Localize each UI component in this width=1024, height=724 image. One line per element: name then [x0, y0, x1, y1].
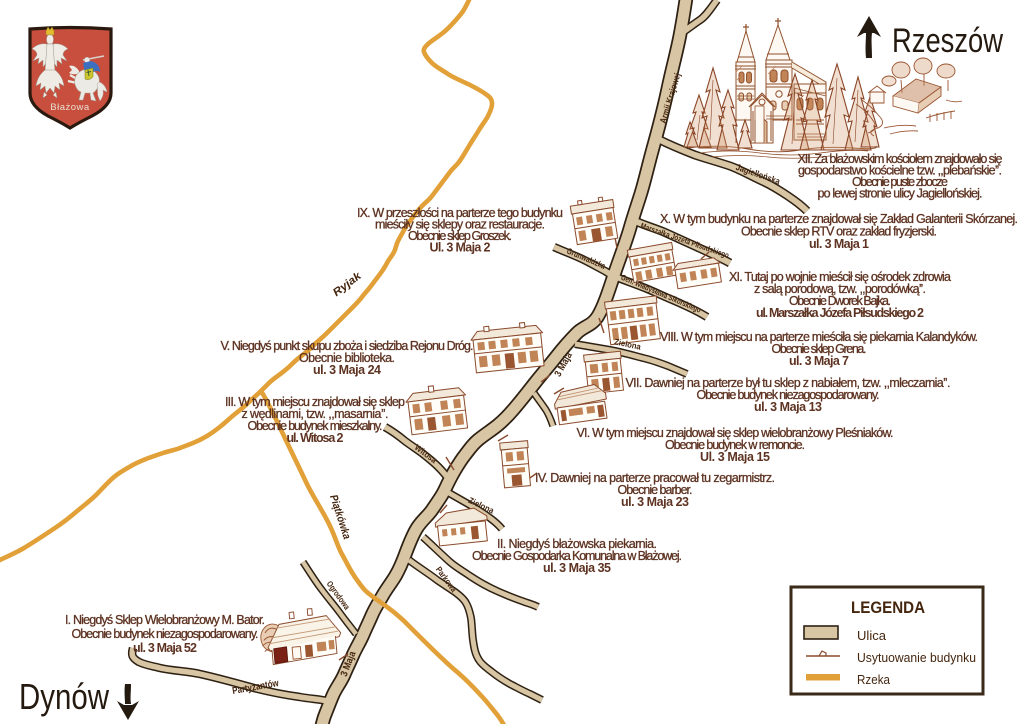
- svg-text:ul. 3 Maja 52: ul. 3 Maja 52: [133, 641, 197, 655]
- svg-text:Ul. 3 Maja 15: Ul. 3 Maja 15: [700, 450, 770, 464]
- svg-text:ul. 3 Maja 7: ul. 3 Maja 7: [789, 354, 849, 368]
- svg-text:Ryjak: Ryjak: [331, 270, 365, 299]
- svg-text:po lewej stronie ulicy Jagiell: po lewej stronie ulicy Jagiellońskiej.: [818, 187, 983, 201]
- svg-text:Ulica: Ulica: [857, 628, 887, 643]
- svg-text:ul. 3 Maja 1: ul. 3 Maja 1: [809, 237, 869, 251]
- svg-text:Dynów: Dynów: [19, 676, 110, 717]
- svg-text:LEGENDA: LEGENDA: [851, 599, 925, 617]
- svg-text:Usytuowanie budynku: Usytuowanie budynku: [857, 650, 976, 665]
- svg-text:Rzeszów: Rzeszów: [892, 22, 1003, 60]
- svg-text:Obecnie budynek niezagospodaro: Obecnie budynek niezagospodarowany.: [72, 627, 259, 641]
- svg-text:ul. 3 Maja 23: ul. 3 Maja 23: [621, 495, 689, 509]
- svg-text:I. Niegdyś Sklep Wielobranżowy: I. Niegdyś Sklep Wielobranżowy M. Bator.: [65, 613, 265, 627]
- svg-text:ul. 3 Maja 13: ul. 3 Maja 13: [754, 400, 822, 414]
- svg-text:ul. Witosa 2: ul. Witosa 2: [287, 431, 344, 445]
- svg-text:Błażowa: Błażowa: [50, 102, 90, 113]
- svg-text:Rzeka: Rzeka: [857, 672, 891, 687]
- svg-text:Ul. 3 Maja 2: Ul. 3 Maja 2: [430, 241, 491, 255]
- svg-text:ul. Marszałka Józefa Piłsudski: ul. Marszałka Józefa Piłsudskiego 2: [756, 306, 924, 320]
- svg-text:ul. 3 Maja 24: ul. 3 Maja 24: [313, 363, 381, 377]
- svg-text:ul. 3 Maja 35: ul. 3 Maja 35: [543, 561, 611, 575]
